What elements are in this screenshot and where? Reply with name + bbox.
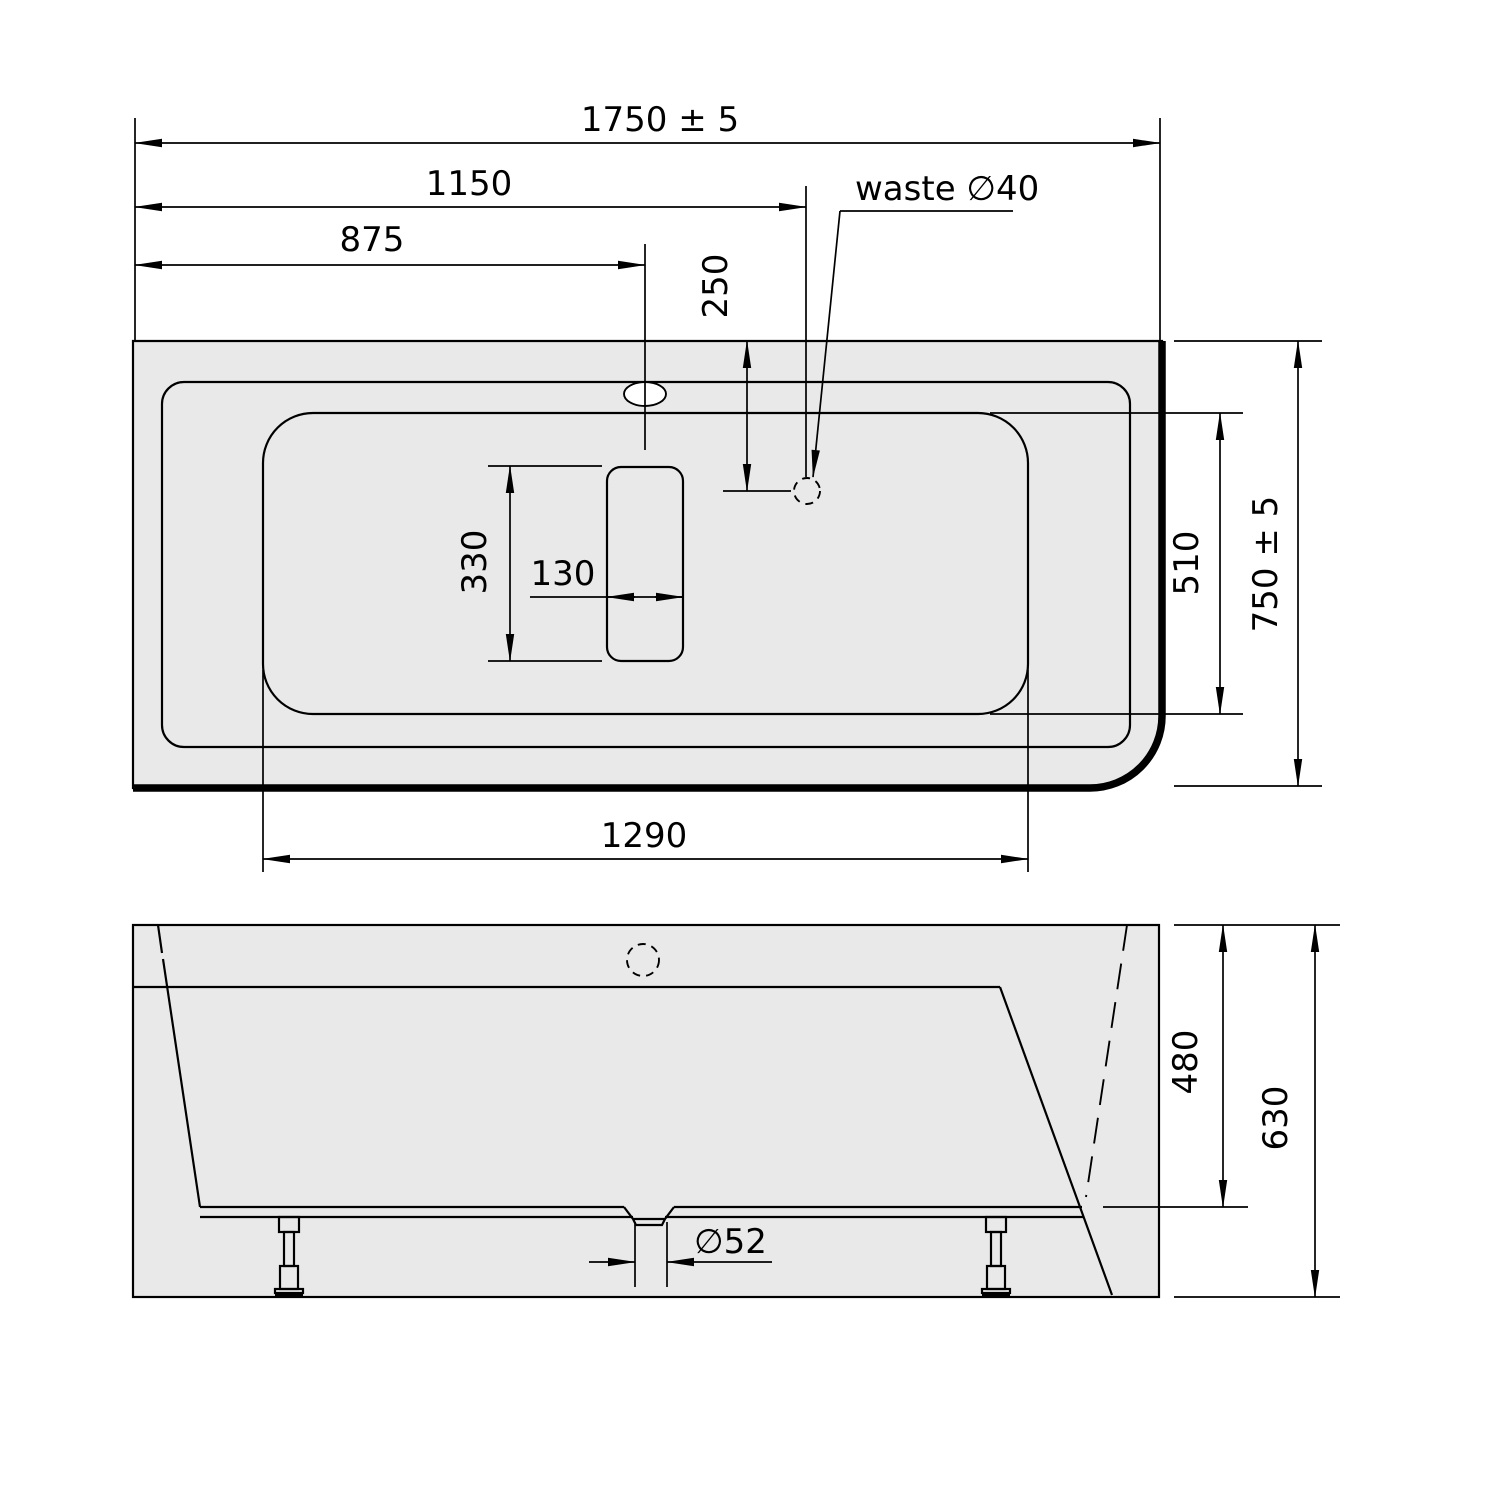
- dim-overall-length: 1750 ± 5: [135, 100, 1160, 340]
- dim-label-52: ∅52: [694, 1222, 767, 1262]
- foot-pad-base: [275, 1293, 303, 1298]
- dim-label-750: 750 ± 5: [1246, 496, 1286, 633]
- dim-label-130: 130: [531, 554, 596, 594]
- tub-outer-body: [133, 341, 1162, 788]
- waste-label: waste ∅40: [855, 169, 1039, 209]
- dim-label-480: 480: [1166, 1030, 1206, 1095]
- dim-label-875: 875: [340, 220, 405, 260]
- side-body: [133, 925, 1159, 1297]
- top-view: [133, 341, 1162, 788]
- bathtub-technical-drawing: 1750 ± 5 1150 875 250 waste ∅40: [0, 0, 1500, 1500]
- dim-label-1290: 1290: [601, 816, 688, 856]
- dim-label-630: 630: [1256, 1086, 1296, 1151]
- dim-label-1750: 1750 ± 5: [581, 100, 739, 140]
- dim-label-250: 250: [696, 254, 736, 319]
- foot-pad-base: [982, 1293, 1010, 1298]
- dim-label-330: 330: [455, 530, 495, 595]
- dim-label-510: 510: [1167, 531, 1207, 596]
- dim-label-1150: 1150: [426, 164, 513, 204]
- side-view: [133, 925, 1159, 1298]
- drawing-page: 1750 ± 5 1150 875 250 waste ∅40: [0, 0, 1500, 1500]
- dim-overall-height: 630: [1174, 925, 1340, 1297]
